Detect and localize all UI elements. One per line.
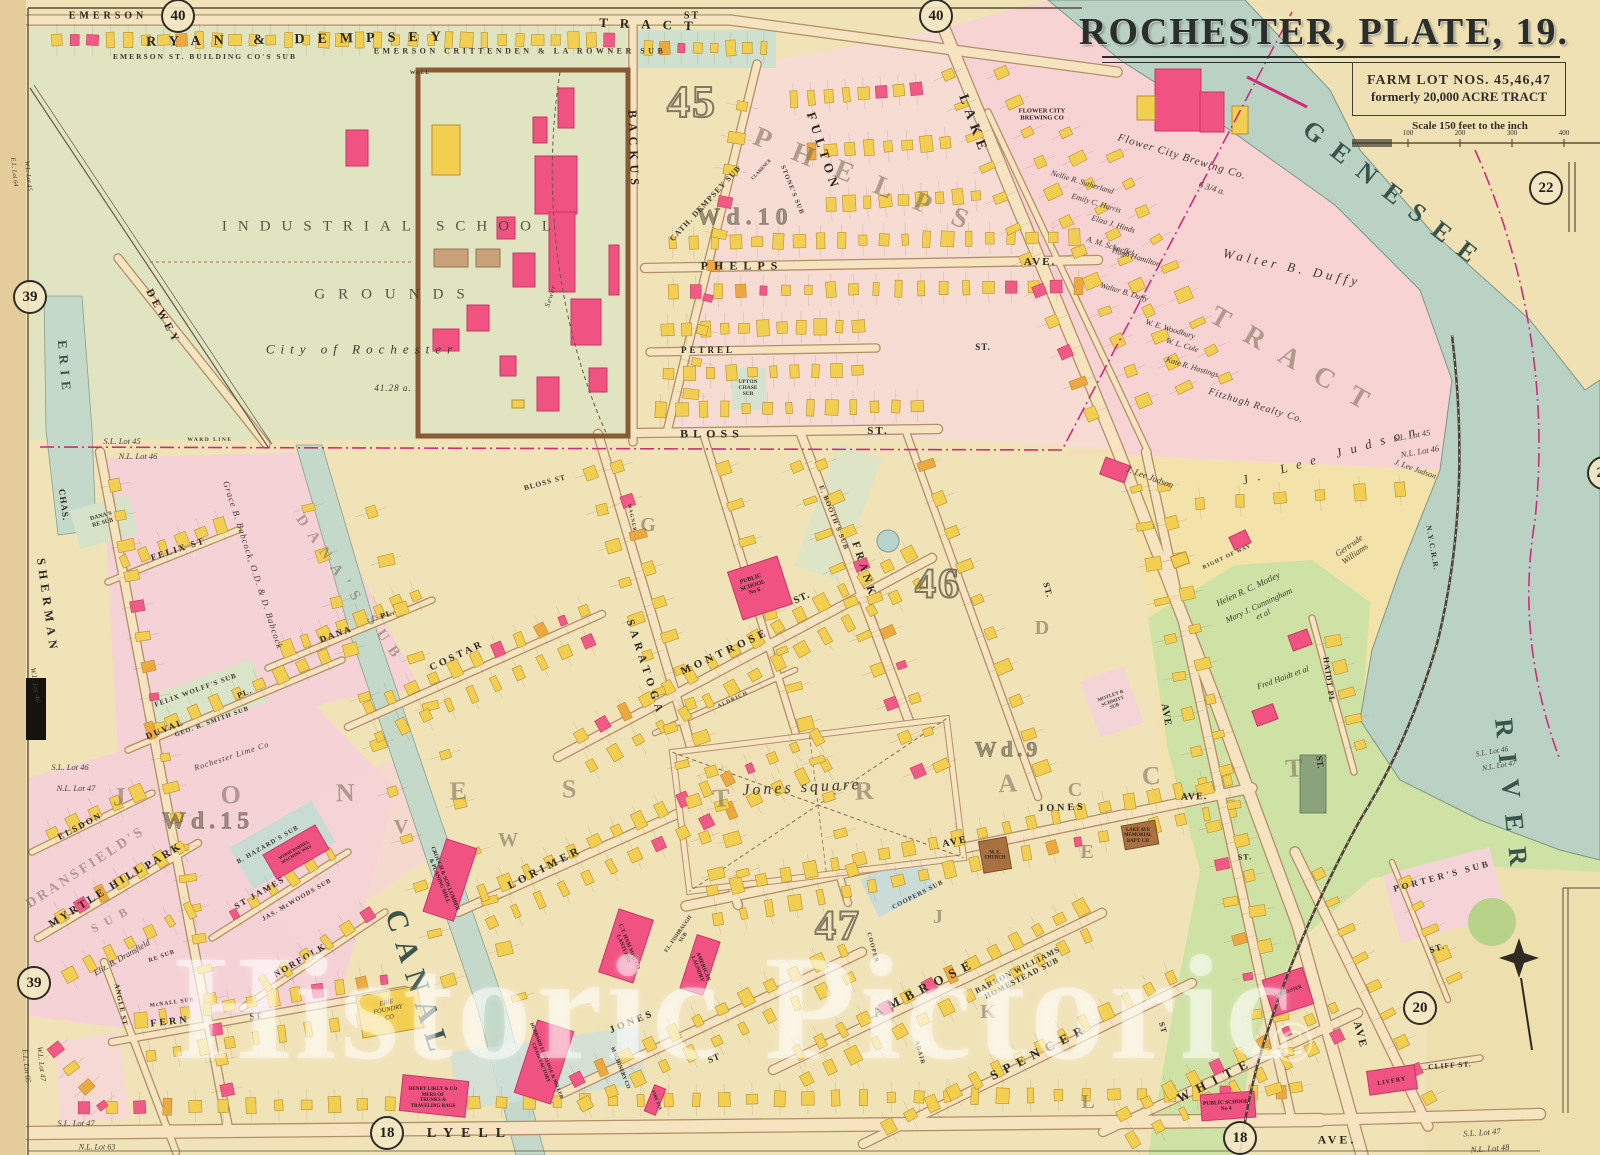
scale-tick: 400 [1559, 129, 1570, 137]
atlas-plate: ROCHESTER, PLATE, 19. FARM LOT NOS. 45,4… [0, 0, 1600, 1155]
map-canvas [0, 0, 1600, 1155]
plate-ref-40: 40 [919, 0, 953, 33]
farm-lot-box: FARM LOT NOS. 45,46,47 formerly 20,000 A… [1352, 62, 1566, 116]
scale-tick: 100 [1403, 129, 1414, 137]
plate-ref-40: 40 [161, 0, 195, 33]
plate-ref-18: 18 [370, 1116, 404, 1150]
plate-title: ROCHESTER, PLATE, 19. [1076, 10, 1572, 54]
plate-ref-18: 18 [1223, 1121, 1257, 1155]
plate-ref-22: 22 [1529, 171, 1563, 205]
scale-tick: 300 [1507, 129, 1518, 137]
plate-ref-39: 39 [13, 280, 47, 314]
scale-tick: 200 [1455, 129, 1466, 137]
plate-ref-20: 20 [1403, 991, 1437, 1025]
farm-lot-formerly: formerly 20,000 ACRE TRACT [1353, 89, 1565, 105]
farm-lot-line: FARM LOT NOS. 45,46,47 [1353, 73, 1565, 89]
plate-ref-39: 39 [17, 966, 51, 1000]
scale-note: Scale 150 feet to the inch [1360, 120, 1580, 132]
pond [877, 530, 899, 552]
